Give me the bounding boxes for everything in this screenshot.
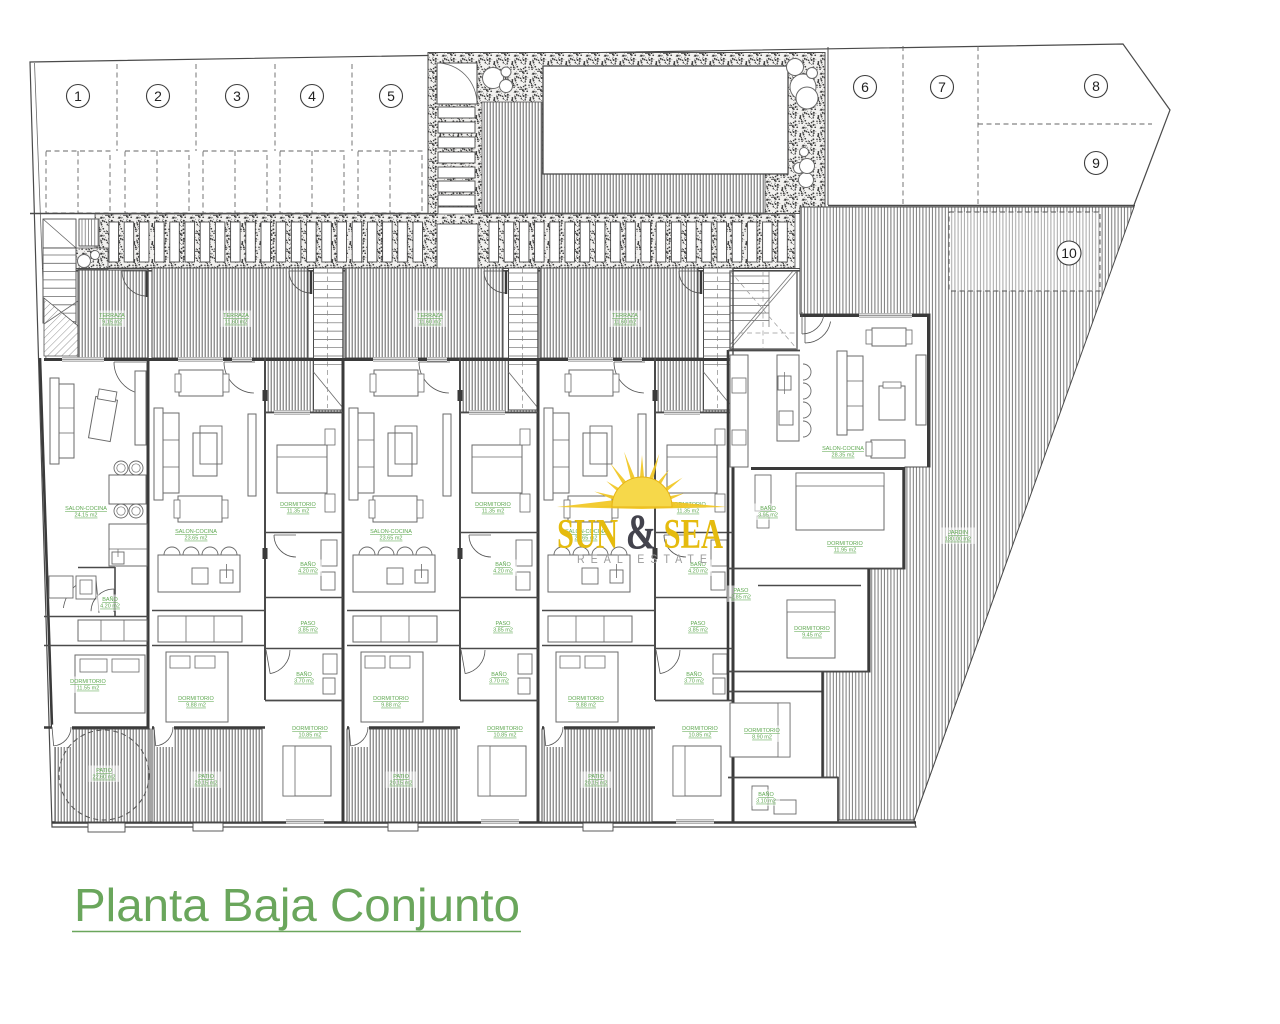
svg-text:BAÑO4.20 m2: BAÑO4.20 m2 — [298, 561, 318, 575]
svg-text:2: 2 — [154, 88, 162, 104]
svg-text:JARDIN180.00 m2: JARDIN180.00 m2 — [945, 530, 971, 543]
svg-text:TERRAZA9.15 m2: TERRAZA9.15 m2 — [99, 313, 125, 326]
svg-text:PASO3.85 m2: PASO3.85 m2 — [298, 621, 318, 634]
svg-text:4: 4 — [308, 88, 316, 104]
svg-text:PASO2.85 m2: PASO2.85 m2 — [731, 588, 751, 601]
svg-text:BAÑO4.20 m2: BAÑO4.20 m2 — [100, 596, 120, 610]
svg-text:10: 10 — [1061, 245, 1077, 261]
svg-text:TERRAZA11.60 m2: TERRAZA11.60 m2 — [417, 313, 443, 326]
svg-text:1: 1 — [74, 88, 82, 104]
svg-text:Planta Baja Conjunto: Planta Baja Conjunto — [74, 879, 520, 931]
svg-text:REAL ESTATE: REAL ESTATE — [577, 554, 713, 566]
svg-text:9: 9 — [1092, 155, 1100, 171]
svg-text:7: 7 — [938, 79, 946, 95]
svg-text:TERRAZA11.60 m2: TERRAZA11.60 m2 — [612, 313, 638, 326]
svg-text:BAÑO3.70 m2: BAÑO3.70 m2 — [294, 671, 314, 685]
svg-text:BAÑO3.70 m2: BAÑO3.70 m2 — [489, 671, 509, 685]
svg-text:PASO3.85 m2: PASO3.85 m2 — [493, 621, 513, 634]
svg-text:PASO3.85 m2: PASO3.85 m2 — [688, 621, 708, 634]
svg-text:BAÑO3.95 m2: BAÑO3.95 m2 — [758, 505, 778, 519]
svg-text:3: 3 — [233, 88, 241, 104]
svg-text:BAÑO4.20 m2: BAÑO4.20 m2 — [493, 561, 513, 575]
svg-text:SUN & SEA: SUN & SEA — [557, 503, 723, 559]
svg-text:5: 5 — [387, 88, 395, 104]
svg-text:BAÑO3.10 m2: BAÑO3.10 m2 — [756, 791, 776, 805]
svg-text:TERRAZA11.60 m2: TERRAZA11.60 m2 — [223, 313, 249, 326]
svg-text:8: 8 — [1092, 78, 1100, 94]
svg-text:6: 6 — [861, 79, 869, 95]
svg-text:BAÑO3.70 m2: BAÑO3.70 m2 — [684, 671, 704, 685]
